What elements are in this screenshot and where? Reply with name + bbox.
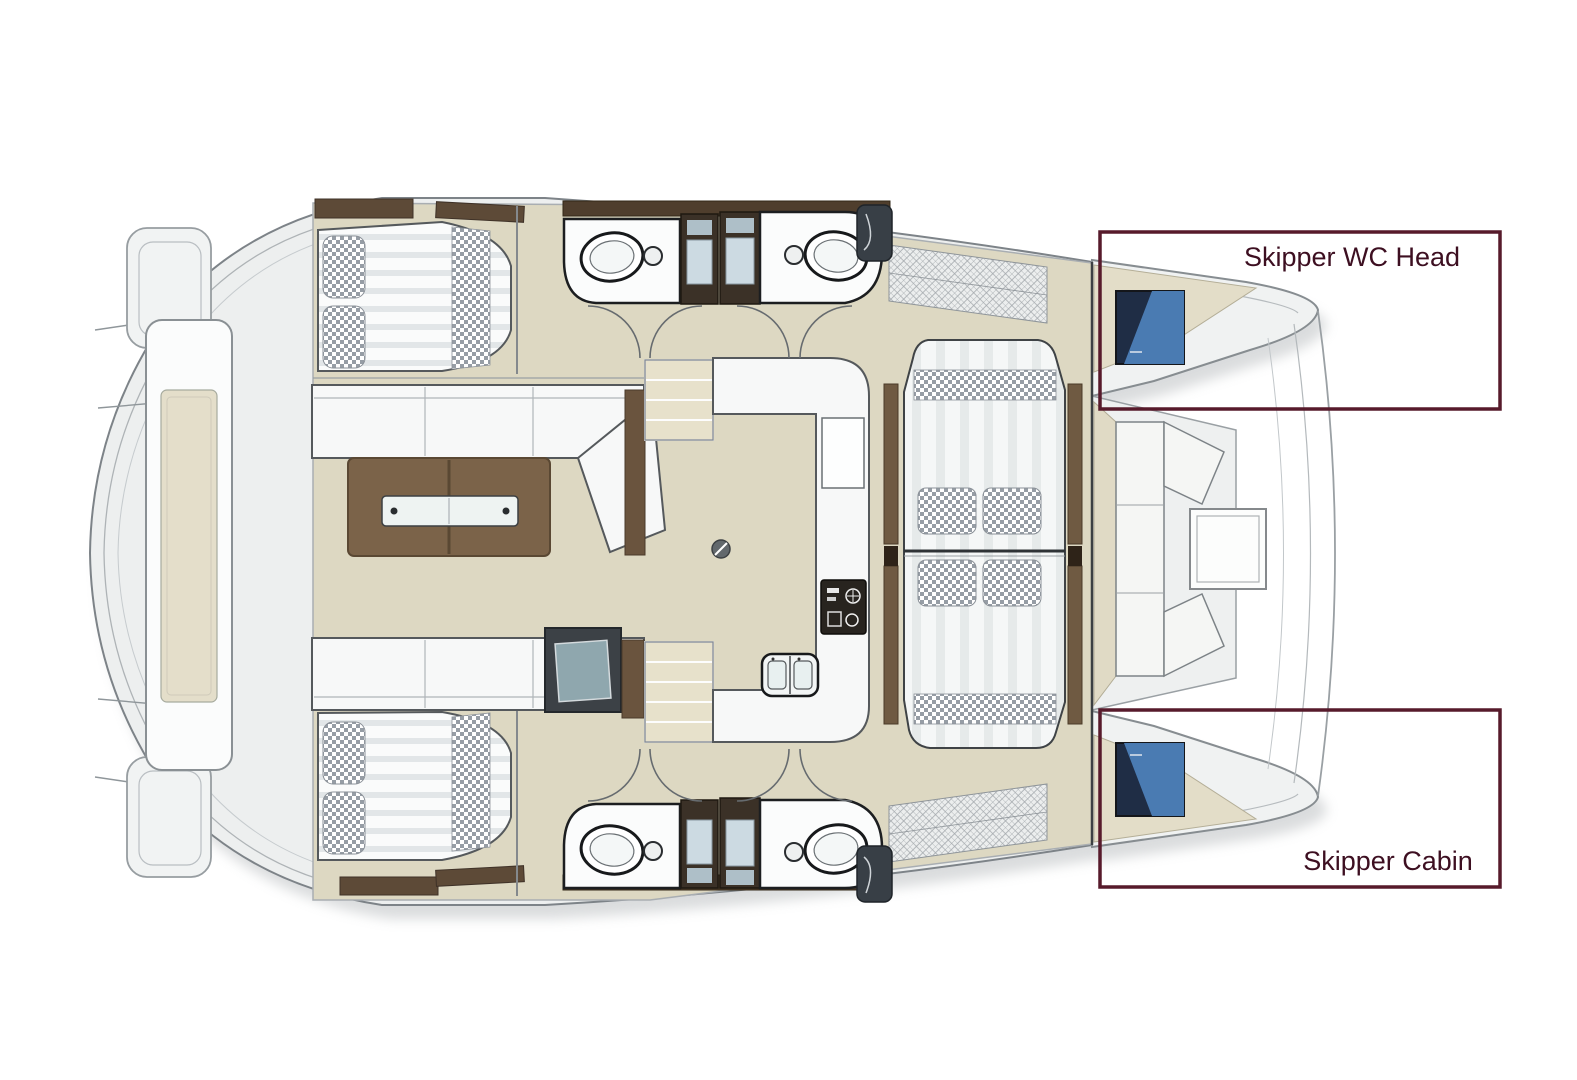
wardrobe [340,877,438,895]
faucet-knob [785,843,803,861]
bow-pulpit-curves [1268,311,1335,796]
bed-runner [452,713,490,851]
boarding-gate-starboard [857,846,892,902]
bow-table [1190,509,1266,589]
nav-wardrobe [622,640,644,718]
galley-sink [762,654,818,696]
pillow [323,306,365,368]
transom-bench-cushion [161,390,217,702]
pillow [323,722,365,784]
table-handle [391,508,398,515]
pillow [323,792,365,854]
callout-label: Skipper Cabin [1303,846,1473,876]
shower [681,800,718,888]
dinette-cushion [918,488,976,534]
side-rail [884,566,898,724]
side-rail [1068,566,1082,724]
shower [720,798,760,888]
faucet-knob [644,247,662,265]
rail-fitting [884,546,898,566]
dinette-cushion [918,560,976,606]
faucet-knob [644,842,662,860]
side-rail [884,384,898,544]
bed-runner [452,227,490,369]
dinette-berth [904,340,1065,748]
salon-wardrobe [625,390,645,555]
shower [720,212,760,304]
bow-bench-edge [1094,402,1116,705]
wardrobe [315,199,413,218]
rail-fitting [1068,546,1082,566]
stove [821,580,866,634]
nav-station-screen [555,640,611,701]
boarding-gate-port [857,205,892,261]
countertop-lid [822,418,864,488]
stairs-starboard [645,642,713,742]
floor-plan-page: Skipper WC Head Skipper Cabin [0,0,1577,1080]
berth-runner [914,694,1056,724]
bow-bench [1116,422,1164,676]
floor-fitting [712,540,730,558]
floor-plan-canvas: Skipper WC Head Skipper Cabin [0,0,1577,1080]
skipper-cabin-hatch [1116,743,1184,816]
berth-runner [914,370,1056,400]
dinette-cushion [983,488,1041,534]
callout-label: Skipper WC Head [1244,242,1460,272]
pillow [323,236,365,298]
salon [312,378,665,718]
shower [681,214,718,304]
side-rail [1068,384,1082,544]
forward-dinette [884,340,1082,748]
dinette-cushion [983,560,1041,606]
stairs-port [645,360,713,440]
skipper-wc-hatch [1116,291,1184,364]
table-handle [503,508,510,515]
faucet-knob [785,246,803,264]
